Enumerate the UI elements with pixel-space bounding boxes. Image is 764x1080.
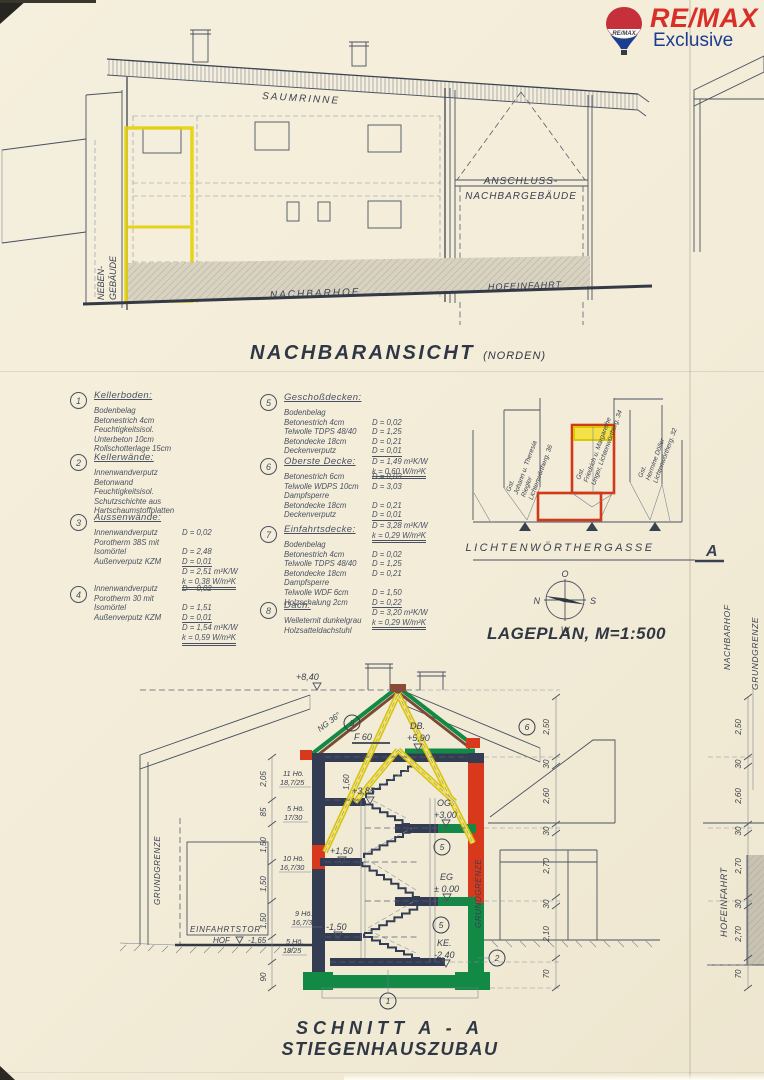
legend-item-dach: 8 Dach:Welleternit dunkelgrauHolzsatteld… bbox=[260, 600, 372, 635]
svg-text:30: 30 bbox=[734, 826, 743, 835]
legend-line: Porotherm 38S mit bbox=[94, 538, 238, 548]
nachbarhof-vertical-label: NACHBARHOF bbox=[722, 604, 732, 670]
svg-text:1,50: 1,50 bbox=[259, 837, 268, 853]
anschluss-label-1: ANSCHLUSS- bbox=[483, 176, 558, 187]
legend-line: Außenverputz KZMD = 0,01 bbox=[94, 613, 238, 624]
legend-line: Betonestrich 4cmD = 0,02 bbox=[284, 550, 428, 560]
legend-line: Feuchtigkeitsisol. bbox=[94, 425, 182, 435]
svg-text:+3,00: +3,00 bbox=[434, 810, 457, 820]
paper-fold-line bbox=[689, 0, 691, 1080]
svg-text:+3,85: +3,85 bbox=[352, 786, 376, 796]
legend-line: Telwolle WDF 6cmD = 1,50 bbox=[284, 588, 428, 598]
svg-text:70: 70 bbox=[542, 969, 551, 978]
legend-line: Dampfsperre bbox=[284, 578, 428, 588]
svg-text:17/30: 17/30 bbox=[284, 813, 302, 822]
grundgrenze-right-label: GRUNDGRENZE bbox=[474, 859, 483, 928]
section-title: SCHNITT A - A STIEGENHAUSZUBAU bbox=[240, 1018, 540, 1060]
grundgrenze-vertical-label: GRUNDGRENZE bbox=[750, 617, 760, 690]
north-arrow-marker bbox=[519, 522, 531, 531]
svg-text:2: 2 bbox=[494, 953, 500, 963]
legend-number: 5 bbox=[260, 394, 277, 411]
svg-text:EINFAHRTSTOR: EINFAHRTSTOR bbox=[190, 925, 261, 934]
elevation-title: NACHBARANSICHT (NORDEN) bbox=[250, 342, 546, 365]
street-label: LICHTENWÖRTHERGASSE bbox=[465, 542, 654, 554]
svg-text:S: S bbox=[590, 596, 596, 606]
legend-line: Betondecke 18cmD = 0,21 bbox=[284, 437, 428, 447]
svg-text:30: 30 bbox=[734, 899, 743, 908]
legend-line: Unterbeton 10cm bbox=[94, 435, 182, 445]
svg-text:HOF: HOF bbox=[213, 936, 231, 945]
legend-item-aussenwand-30: 4 InnenwandverputzD = 0,02Porotherm 30 m… bbox=[70, 584, 238, 646]
svg-text:+8,40: +8,40 bbox=[296, 672, 319, 682]
svg-text:1,50: 1,50 bbox=[259, 876, 268, 892]
legend-number: 6 bbox=[260, 458, 277, 475]
svg-text:90: 90 bbox=[259, 972, 268, 981]
remax-sub-text: Exclusive bbox=[653, 31, 758, 51]
elevation-drawing: SAUMRINNE ANSCHLUSS- NACHBARGEBÄUDE NEBE… bbox=[2, 30, 764, 325]
legend-number: 4 bbox=[70, 586, 87, 603]
svg-text:9 Hö.: 9 Hö. bbox=[295, 909, 312, 918]
anschluss-label-2: NACHBARGEBÄUDE bbox=[465, 190, 577, 202]
section-marker-a: A bbox=[705, 543, 718, 560]
siteplan-drawing: A Gst. Johann u. Theresia Riegler Lichte… bbox=[465, 398, 724, 635]
svg-text:16,7/30: 16,7/30 bbox=[292, 918, 316, 927]
legend-line: Porotherm 30 mit bbox=[94, 594, 238, 604]
svg-text:DB.: DB. bbox=[410, 721, 425, 731]
scan-corner-artifact bbox=[0, 1066, 15, 1080]
roof-pitch-label: NG 36° bbox=[316, 710, 343, 734]
legend-line: Betonestrich 4cm bbox=[94, 416, 182, 426]
svg-text:KE.: KE. bbox=[437, 938, 452, 948]
nebengebaeude-label-2: GEBÄUDE bbox=[108, 255, 118, 300]
nachbarhof-label: NACHBARHOF bbox=[270, 287, 360, 301]
svg-text:11 Hö.: 11 Hö. bbox=[283, 769, 304, 778]
legend-line: Bodenbelag bbox=[94, 406, 182, 416]
legend-line: D = 1,54 m²K/W bbox=[94, 623, 238, 633]
svg-text:30: 30 bbox=[542, 826, 551, 835]
saumrinne-label: SAUMRINNE bbox=[262, 91, 341, 107]
svg-text:2,70: 2,70 bbox=[734, 926, 743, 943]
legend-line: Welleternit dunkelgrau bbox=[284, 616, 372, 626]
legend-number: 2 bbox=[70, 454, 87, 471]
svg-text:2,05: 2,05 bbox=[259, 771, 268, 788]
svg-text:RE/MAX: RE/MAX bbox=[612, 31, 636, 37]
svg-text:-1,50: -1,50 bbox=[326, 922, 347, 932]
remax-logo: RE/MAX RE/MAX Exclusive bbox=[602, 5, 758, 59]
svg-text:+5,90: +5,90 bbox=[407, 733, 430, 743]
legend-line: Bodenbelag bbox=[284, 408, 428, 418]
legend-line: Schutzschichte aus bbox=[94, 497, 182, 507]
legend-line: Feuchtigkeitsisol. bbox=[94, 487, 182, 497]
dimension-chain-mid: 2,50 30 2,60 30 2,70 30 2,10 70 bbox=[542, 694, 560, 991]
scan-corner-artifact bbox=[0, 0, 27, 24]
svg-text:1: 1 bbox=[386, 996, 391, 1006]
svg-text:5 Hö.: 5 Hö. bbox=[287, 804, 304, 813]
legend-item-kellerwaende: 2 Kellerwände:InnenwandverputzBetonwandF… bbox=[70, 452, 182, 516]
svg-text:6: 6 bbox=[525, 722, 530, 732]
svg-text:16,7/30: 16,7/30 bbox=[280, 863, 304, 872]
svg-text:2,50: 2,50 bbox=[542, 719, 551, 736]
legend-line: D = 2,51 m²K/W bbox=[94, 567, 238, 577]
paper-fold-line bbox=[0, 371, 764, 372]
legend-line: InnenwandverputzD = 0,02 bbox=[94, 584, 238, 594]
svg-text:-2,40: -2,40 bbox=[434, 950, 455, 960]
svg-text:-1,65: -1,65 bbox=[248, 936, 267, 945]
svg-text:5: 5 bbox=[440, 842, 445, 852]
legend-line: InnenwandverputzD = 0,02 bbox=[94, 528, 238, 538]
legend-line: IsomörtelD = 2,48 bbox=[94, 547, 238, 557]
svg-text:N: N bbox=[534, 596, 541, 606]
legend-line: Holzsatteldachstuhl bbox=[284, 626, 372, 636]
legend-line: Betondecke 18cmD = 0,21 bbox=[284, 501, 428, 511]
svg-text:30: 30 bbox=[542, 899, 551, 908]
legend-line: k = 0,59 W/m²K bbox=[94, 633, 238, 646]
legend-line: Innenwandverputz bbox=[94, 468, 182, 478]
svg-text:70: 70 bbox=[734, 969, 743, 978]
svg-text:OG.: OG. bbox=[437, 798, 454, 808]
svg-text:2,60: 2,60 bbox=[734, 788, 743, 805]
svg-text:2,10: 2,10 bbox=[542, 926, 551, 943]
svg-text:2,60: 2,60 bbox=[542, 788, 551, 805]
legend-item-aussenwaende: 3 Aussenwände:InnenwandverputzD = 0,02Po… bbox=[70, 512, 238, 590]
legend-line: Telwolle WDPS 10cmD = 3,03 bbox=[284, 482, 428, 492]
grundgrenze-left-label: GRUNDGRENZE bbox=[153, 836, 162, 905]
legend-line: Bodenbelag bbox=[284, 540, 428, 550]
legend-line: Betondecke 18cmD = 0,21 bbox=[284, 569, 428, 579]
svg-text:2,70: 2,70 bbox=[542, 858, 551, 875]
svg-text:5: 5 bbox=[439, 920, 444, 930]
legend-line: Außenverputz KZMD = 0,01 bbox=[94, 557, 238, 568]
legend-line: IsomörtelD = 1,51 bbox=[94, 603, 238, 613]
paper-fold-line bbox=[0, 1072, 764, 1073]
legend-line: DeckenverputzD = 0,01 bbox=[284, 510, 428, 521]
svg-text:30: 30 bbox=[542, 759, 551, 768]
parcel-label-doeller: Gst. Hermine Döller Lichtenwörtherg. 32 bbox=[637, 422, 679, 485]
legend-number: 3 bbox=[70, 514, 87, 531]
svg-text:8: 8 bbox=[350, 718, 355, 728]
svg-text:EG: EG bbox=[440, 872, 453, 882]
f60-label: F 60 bbox=[354, 732, 372, 742]
scanned-plan-page: SAUMRINNE ANSCHLUSS- NACHBARGEBÄUDE NEBE… bbox=[0, 0, 764, 1080]
legend-line: Betonestrich 6cmD = 0,03 bbox=[284, 472, 428, 482]
dimension-chain-left: 2,05 85 1,50 1,50 1,50 90 bbox=[259, 754, 276, 991]
remax-brand-text: RE/MAX bbox=[650, 5, 758, 31]
scan-edge-artifact bbox=[344, 1074, 764, 1080]
dim-160: 1,60 bbox=[342, 774, 351, 790]
remax-balloon-icon: RE/MAX bbox=[602, 5, 646, 59]
legend-line: Betonestrich 4cmD = 0,02 bbox=[284, 418, 428, 428]
svg-text:2,70: 2,70 bbox=[734, 858, 743, 875]
legend-number: 1 bbox=[70, 392, 87, 409]
legend-number: 7 bbox=[260, 526, 277, 543]
siteplan-title: LAGEPLAN, M=1:500 bbox=[487, 624, 666, 644]
svg-text:5 Hö.: 5 Hö. bbox=[286, 937, 303, 946]
legend-line: Telwolle TDPS 48/40D = 1,25 bbox=[284, 427, 428, 437]
svg-text:O: O bbox=[561, 569, 568, 579]
svg-text:30: 30 bbox=[734, 759, 743, 768]
legend-number: 8 bbox=[260, 602, 277, 619]
nebengebaeude-label-1: NEBEN- bbox=[96, 266, 106, 300]
legend-line: Telwolle TDPS 48/40D = 1,25 bbox=[284, 559, 428, 569]
svg-text:85: 85 bbox=[259, 807, 268, 816]
svg-text:2,50: 2,50 bbox=[734, 719, 743, 736]
svg-text:18/25: 18/25 bbox=[283, 946, 302, 955]
scan-edge-artifact bbox=[0, 0, 96, 3]
svg-text:+1,50: +1,50 bbox=[330, 846, 353, 856]
legend-line: Betonwand bbox=[94, 478, 182, 488]
svg-text:± 0.00: ± 0.00 bbox=[434, 884, 459, 894]
hofeinfahrt-vertical-label: HOFEINFAHRT bbox=[719, 866, 729, 937]
section-drawing: 2,05 85 1,50 1,50 1,50 90 2,50 30 2,60 3… bbox=[120, 664, 764, 1009]
legend-item-kellerboden: 1 Kellerboden:BodenbelagBetonestrich 4cm… bbox=[70, 390, 182, 454]
legend-line: Dampfsperre bbox=[284, 491, 428, 501]
svg-text:18,7/25: 18,7/25 bbox=[280, 778, 305, 787]
svg-text:10 Hö.: 10 Hö. bbox=[283, 854, 305, 863]
parcel-label-unger: Gst. Friedrich u. Margarethe Unger, Lich… bbox=[575, 404, 624, 487]
